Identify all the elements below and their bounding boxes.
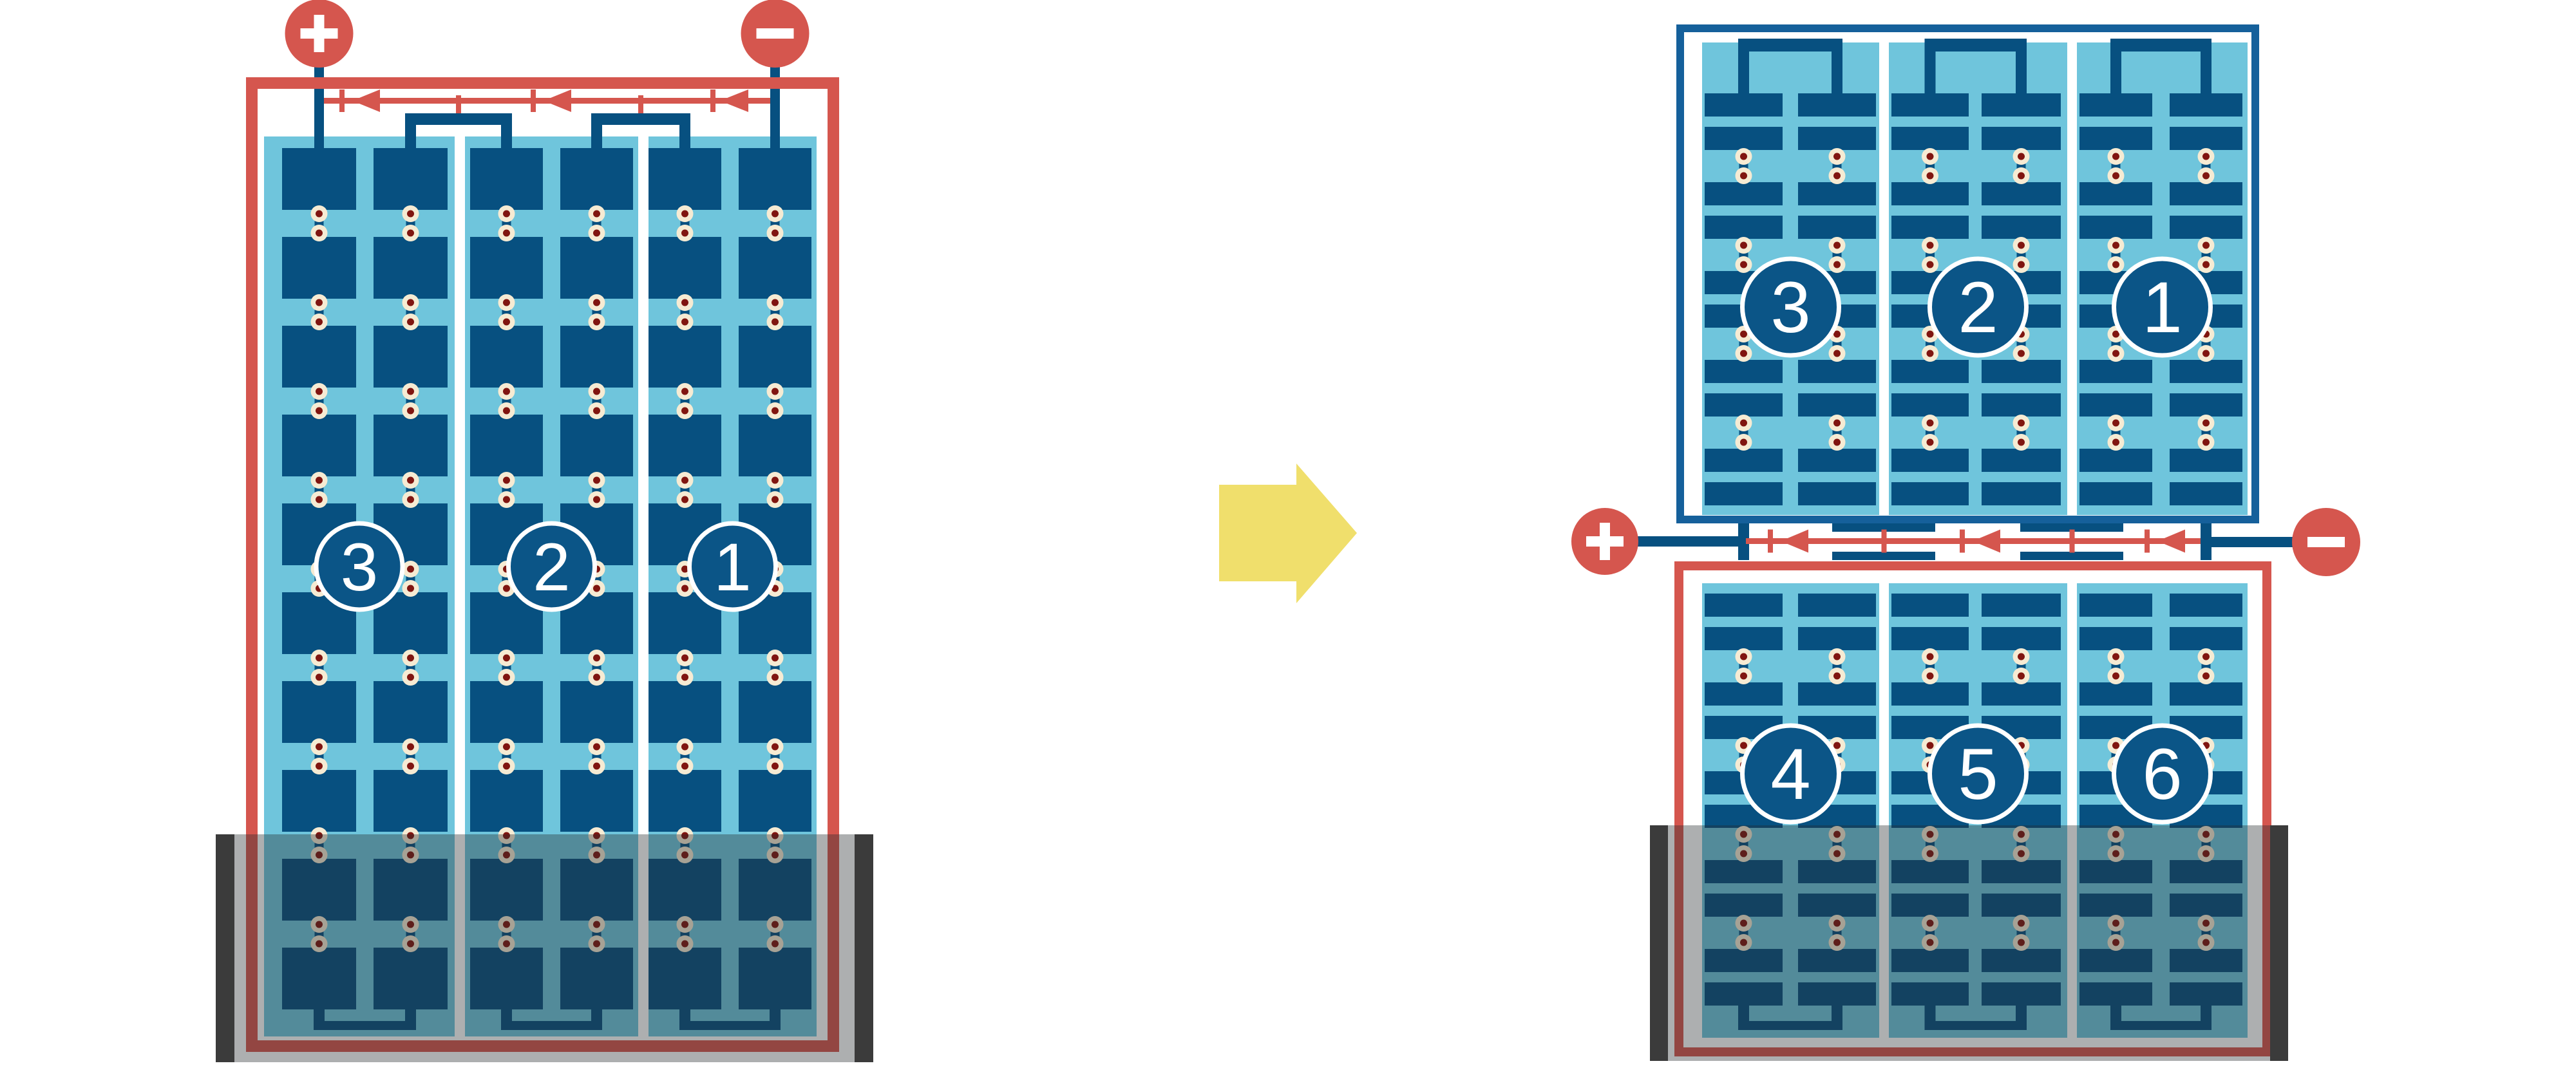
solder-joint-core [2018, 673, 2025, 680]
solder-joint-core [593, 763, 600, 770]
solar-cell [1891, 182, 1969, 205]
solder-joint-core [2112, 153, 2119, 160]
solder-joint-core [1927, 742, 1934, 749]
diode-cathode-bar [2145, 530, 2150, 553]
solder-joint-core [503, 388, 510, 395]
solar-cell [739, 237, 811, 299]
solar-cell [1798, 449, 1876, 472]
positive-terminal [1571, 508, 1638, 575]
diode-cathode-bar [531, 89, 536, 112]
solar-cell [649, 326, 721, 388]
solder-joint-core [316, 408, 323, 415]
solar-cell [2079, 682, 2152, 706]
substring-bridge-bar [591, 113, 690, 125]
panel-frame-blue-bottom-edge [1676, 516, 2259, 523]
solder-joint-core [593, 319, 600, 326]
positive-terminal [285, 0, 354, 68]
substring-bridge-leg [405, 125, 416, 162]
junction-tab [1832, 552, 1935, 560]
solder-joint-core [593, 674, 600, 681]
substring-bridge-leg [679, 125, 690, 162]
substring-number: 1 [2142, 267, 2182, 348]
solar-cell [2170, 449, 2242, 472]
solder-joint-core [316, 674, 323, 681]
solder-joint-core [2112, 673, 2119, 680]
solder-joint-core [681, 388, 688, 395]
solder-joint-core [681, 744, 688, 751]
shade-edge-bar [2270, 825, 2288, 1061]
solar-cell [2170, 182, 2242, 205]
solder-joint-core [503, 230, 510, 237]
solar-cell [282, 415, 356, 476]
solder-joint-core [407, 744, 414, 751]
solar-cell [2079, 627, 2152, 650]
solar-cell [470, 326, 543, 388]
solder-joint-core [1833, 261, 1841, 268]
substring-bridge-bar [1925, 39, 2027, 52]
substring-number: 6 [2142, 734, 2182, 814]
solar-cell [1798, 93, 1876, 117]
half-cut-panel-diagram: 321456 [1571, 28, 2360, 1061]
solder-joint-core [1740, 653, 1747, 660]
solder-joint-core [2112, 653, 2119, 660]
substring-number: 3 [341, 530, 378, 605]
solder-joint-core [503, 211, 510, 218]
solder-joint-core [772, 763, 779, 770]
solder-joint-core [2112, 173, 2119, 180]
solder-joint-core [772, 299, 779, 306]
shade-edge-bar [855, 834, 873, 1062]
substring-bridge-leg [1832, 52, 1842, 93]
shade-overlay [216, 834, 873, 1062]
solar-cell [1891, 682, 1969, 706]
solar-cell [2079, 93, 2152, 117]
solar-cell [1891, 594, 1969, 617]
solder-joint-core [503, 674, 510, 681]
transform-arrow-icon [1219, 464, 1357, 603]
solder-joint-core [316, 477, 323, 484]
solar-cell [282, 237, 356, 299]
solder-joint-core [2018, 420, 2025, 427]
solder-joint-core [1927, 173, 1934, 180]
solder-joint-core [316, 655, 323, 662]
solar-cell [1982, 482, 2061, 505]
solar-cell [282, 770, 356, 832]
solder-joint-core [1740, 742, 1747, 749]
diode-cathode-bar [339, 89, 345, 112]
solder-joint-core [2112, 439, 2119, 446]
substring-badge: 5 [1930, 726, 2027, 822]
solder-joint-core [2112, 350, 2119, 357]
solar-cell [2170, 627, 2242, 650]
solder-joint-core [503, 496, 510, 503]
solar-cell [2079, 393, 2152, 417]
solar-cell [560, 681, 633, 743]
solar-cell [560, 415, 633, 476]
solar-cell [2079, 127, 2152, 150]
solar-cell [1982, 627, 2061, 650]
solar-cell [1982, 360, 2061, 383]
solar-cell [1705, 482, 1783, 505]
negative-junction-bar [2201, 523, 2211, 560]
solder-joint-core [681, 211, 688, 218]
solar-cell [470, 681, 543, 743]
solder-joint-core [772, 744, 779, 751]
substring-bridge-bar [1738, 39, 1842, 52]
solder-joint-core [1833, 350, 1841, 357]
substring-badge: 2 [509, 523, 595, 610]
solar-cell [1798, 482, 1876, 505]
solder-joint-core [681, 496, 688, 503]
solder-joint-core [407, 230, 414, 237]
solder-joint-core [2018, 653, 2025, 660]
solar-cell [1705, 449, 1783, 472]
solder-joint-core [2202, 242, 2210, 249]
solder-joint-core [407, 585, 414, 592]
solar-cell [1705, 127, 1783, 150]
solar-cell [649, 237, 721, 299]
solder-joint-core [503, 585, 510, 592]
solder-joint-core [407, 477, 414, 484]
substring-bridge-leg [591, 125, 602, 162]
solder-joint-core [1740, 331, 1747, 338]
solder-joint-core [407, 319, 414, 326]
solder-joint-core [316, 388, 323, 395]
solder-joint-core [407, 566, 414, 573]
solar-cell [1982, 393, 2061, 417]
solder-joint-core [1833, 153, 1841, 160]
solar-cell [1891, 482, 1969, 505]
solar-cell [2079, 182, 2152, 205]
solder-joint-core [1927, 439, 1934, 446]
solder-joint-core [2112, 261, 2119, 268]
solder-joint-core [593, 585, 600, 592]
solder-joint-core [681, 477, 688, 484]
solar-cell [1982, 449, 2061, 472]
diode-triangle [1781, 530, 1808, 553]
substring-badge: 3 [316, 523, 402, 610]
solder-joint-core [1740, 439, 1747, 446]
solder-joint-core [407, 655, 414, 662]
solar-cell [2079, 594, 2152, 617]
solder-joint-core [593, 496, 600, 503]
solar-cell [2170, 360, 2242, 383]
solar-cell [470, 770, 543, 832]
substring-bridge-leg [1925, 52, 1936, 93]
solder-joint-core [503, 763, 510, 770]
diode-cathode-bar [710, 89, 715, 112]
solder-joint-core [407, 674, 414, 681]
solder-joint-core [2112, 242, 2119, 249]
substring-bridge-leg [2110, 52, 2121, 93]
solder-joint-core [1927, 673, 1934, 680]
solder-joint-core [1833, 420, 1841, 427]
solder-joint-core [681, 230, 688, 237]
solder-joint-core [316, 211, 323, 218]
junction-tab [2020, 552, 2123, 560]
solder-joint-core [593, 655, 600, 662]
solder-joint-core [407, 388, 414, 395]
solar-cell [739, 770, 811, 832]
solar-cell [560, 770, 633, 832]
terminal-glyph-bar [2307, 537, 2345, 547]
solder-joint-core [1833, 242, 1841, 249]
solder-joint-core [407, 763, 414, 770]
negative-terminal [2292, 508, 2360, 576]
solder-joint-core [316, 744, 323, 751]
solder-joint-core [1927, 261, 1934, 268]
solder-joint-core [2018, 439, 2025, 446]
solder-joint-core [681, 585, 688, 592]
solar-cell [374, 770, 448, 832]
solder-joint-core [593, 388, 600, 395]
solder-joint-core [1740, 261, 1747, 268]
solder-joint-core [593, 744, 600, 751]
solar-cell [1798, 216, 1876, 239]
solder-joint-core [407, 299, 414, 306]
solder-joint-core [681, 299, 688, 306]
substring-number: 5 [1958, 734, 1998, 814]
solar-cell [560, 237, 633, 299]
diode-triangle [720, 89, 748, 112]
positive-lead-wire [1637, 536, 1740, 547]
solder-joint-core [593, 408, 600, 415]
diode-triangle [2157, 530, 2185, 553]
solder-joint-core [1927, 331, 1934, 338]
solar-cell [282, 326, 356, 388]
solar-cell [649, 415, 721, 476]
solar-cell [1705, 594, 1783, 617]
solar-cell [1705, 93, 1783, 117]
solder-joint-core [681, 763, 688, 770]
negative-lead-wire [2211, 537, 2293, 547]
solar-cell [1891, 393, 1969, 417]
substring-badge: 4 [1743, 726, 1839, 822]
solder-joint-core [2018, 173, 2025, 180]
solder-joint-core [772, 655, 779, 662]
solar-cell [1891, 360, 1969, 383]
solar-cell [1705, 182, 1783, 205]
terminal-glyph-bar [757, 28, 794, 39]
solder-joint-core [1927, 420, 1934, 427]
substring-number: 2 [1958, 267, 1998, 348]
full-cell-panel-diagram: 321 [216, 0, 873, 1062]
solar-cell [1705, 393, 1783, 417]
solar-cell [1705, 682, 1783, 706]
solar-cell [2170, 482, 2242, 505]
diagram-canvas: 321321456 [0, 0, 2576, 1068]
substring-badge: 1 [2114, 259, 2211, 355]
solder-joint-core [593, 211, 600, 218]
solar-cell [1891, 127, 1969, 150]
solar-cell [1705, 216, 1783, 239]
solder-joint-core [772, 230, 779, 237]
solder-joint-core [316, 496, 323, 503]
solder-joint-core [1927, 350, 1934, 357]
solar-cell [1982, 682, 2061, 706]
solar-cell [649, 770, 721, 832]
solder-joint-core [772, 388, 779, 395]
solder-joint-core [2202, 653, 2210, 660]
solar-cell [739, 326, 811, 388]
substring-number: 4 [1770, 734, 1810, 814]
solder-joint-core [1740, 673, 1747, 680]
solar-cell [374, 681, 448, 743]
solar-cell [2079, 360, 2152, 383]
solar-cell [739, 681, 811, 743]
substring-badge: 3 [1743, 259, 1839, 355]
diode-triangle [1973, 530, 2000, 553]
solar-cell [1982, 216, 2061, 239]
diode-cathode-bar [1960, 530, 1965, 553]
terminal-glyph-bar [314, 15, 325, 52]
solder-joint-core [1740, 173, 1747, 180]
negative-terminal [741, 0, 810, 68]
solar-cell [470, 415, 543, 476]
solder-joint-core [2018, 153, 2025, 160]
solar-cell [1798, 393, 1876, 417]
substring-bridge-leg [2016, 52, 2027, 93]
solder-joint-core [2202, 350, 2210, 357]
solar-cell [374, 237, 448, 299]
shade-edge-bar [216, 834, 234, 1062]
solar-cell [739, 415, 811, 476]
solder-joint-core [772, 496, 779, 503]
solder-joint-core [681, 319, 688, 326]
substring-badge: 6 [2114, 726, 2211, 822]
solder-joint-core [681, 674, 688, 681]
solder-joint-core [1833, 653, 1841, 660]
solder-joint-core [681, 655, 688, 662]
solar-cell [2170, 93, 2242, 117]
solar-cell [560, 326, 633, 388]
solder-joint-core [503, 408, 510, 415]
diode-triangle [544, 89, 571, 112]
solder-joint-core [2018, 350, 2025, 357]
junction-tick [1882, 530, 1887, 553]
solar-cell [2170, 127, 2242, 150]
solar-cell [1798, 627, 1876, 650]
solar-cell [1982, 594, 2061, 617]
solder-joint-core [772, 211, 779, 218]
substring-number: 2 [533, 530, 570, 605]
substring-number: 1 [714, 530, 751, 605]
solder-joint-core [772, 319, 779, 326]
solder-joint-core [316, 763, 323, 770]
substring-number: 3 [1770, 267, 1810, 348]
solder-joint-core [593, 477, 600, 484]
solder-joint-core [772, 408, 779, 415]
solar-cell [374, 415, 448, 476]
solar-cell [1891, 627, 1969, 650]
solder-joint-core [2202, 173, 2210, 180]
solar-cell [1798, 594, 1876, 617]
panel-diagram-svg: 321321456 [0, 0, 2576, 1068]
substring-badge: 1 [690, 523, 776, 610]
solder-joint-core [503, 319, 510, 326]
solar-cell [2079, 482, 2152, 505]
solar-cell [2079, 449, 2152, 472]
terminal-glyph-bar [1600, 523, 1610, 560]
solar-cell [1798, 182, 1876, 205]
solder-joint-core [2112, 742, 2119, 749]
solar-cell [1891, 93, 1969, 117]
substring-bridge-leg [1738, 52, 1749, 93]
solar-cell [649, 681, 721, 743]
substring-bridge-bar [2110, 39, 2211, 52]
shade-edge-bar [1650, 825, 1668, 1061]
solder-joint-core [503, 477, 510, 484]
solder-joint-core [316, 230, 323, 237]
substring-bridge-leg [2201, 52, 2211, 93]
solder-joint-core [1833, 173, 1841, 180]
solder-joint-core [681, 408, 688, 415]
solder-joint-core [593, 299, 600, 306]
solar-cell [1891, 449, 1969, 472]
solder-joint-core [772, 477, 779, 484]
solar-cell [1798, 682, 1876, 706]
solar-cell [282, 681, 356, 743]
solder-joint-core [772, 674, 779, 681]
solar-cell [1705, 360, 1783, 383]
solar-cell [1798, 360, 1876, 383]
solder-joint-core [316, 319, 323, 326]
solar-cell [1982, 127, 2061, 150]
solar-cell [1982, 93, 2061, 117]
substring-bridge-bar [405, 113, 512, 125]
solder-joint-core [503, 744, 510, 751]
diode-cathode-bar [1768, 530, 1773, 553]
solder-joint-core [1833, 673, 1841, 680]
solar-cell [1798, 127, 1876, 150]
shade-overlay [1650, 825, 2288, 1061]
solder-joint-core [1740, 420, 1747, 427]
solder-joint-core [2202, 420, 2210, 427]
solar-cell [2170, 393, 2242, 417]
solar-cell [2170, 216, 2242, 239]
solder-joint-core [2202, 439, 2210, 446]
substring-bridge-leg [501, 125, 512, 162]
solder-joint-core [2018, 261, 2025, 268]
solder-joint-core [1833, 439, 1841, 446]
solder-joint-core [1740, 350, 1747, 357]
solar-cell [374, 326, 448, 388]
solder-joint-core [1927, 242, 1934, 249]
solder-joint-core [407, 211, 414, 218]
solder-joint-core [503, 299, 510, 306]
solder-joint-core [593, 230, 600, 237]
solar-cell [1982, 182, 2061, 205]
solder-joint-core [2018, 242, 2025, 249]
junction-tick [2070, 530, 2075, 553]
solar-cell [2170, 594, 2242, 617]
solar-cell [1705, 627, 1783, 650]
solder-joint-core [1927, 153, 1934, 160]
solar-cell [1891, 216, 1969, 239]
solar-cell [2079, 216, 2152, 239]
solder-joint-core [2202, 153, 2210, 160]
diode-triangle [352, 89, 380, 112]
solder-joint-core [1833, 742, 1841, 749]
solar-cell [470, 237, 543, 299]
solder-joint-core [2112, 420, 2119, 427]
solder-joint-core [407, 496, 414, 503]
solar-cell [2170, 682, 2242, 706]
solder-joint-core [1740, 242, 1747, 249]
solder-joint-core [316, 299, 323, 306]
solder-joint-core [503, 655, 510, 662]
solder-joint-core [2202, 261, 2210, 268]
